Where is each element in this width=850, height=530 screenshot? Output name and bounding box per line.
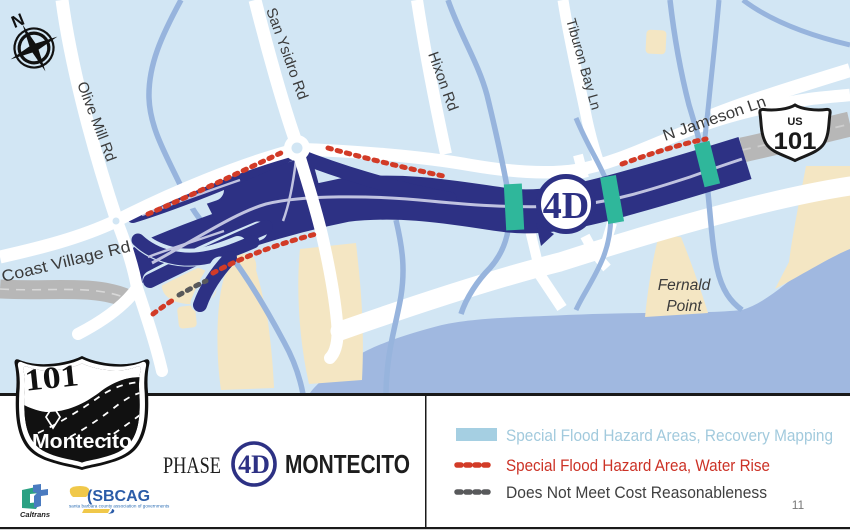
- svg-text:Point: Point: [666, 298, 702, 315]
- svg-text:Special Flood Hazard Area, Wat: Special Flood Hazard Area, Water Rise: [506, 457, 770, 475]
- svg-text:11: 11: [792, 498, 805, 512]
- svg-text:santa barbara county associati: santa barbara county association of gove…: [69, 504, 170, 509]
- svg-text:4D: 4D: [543, 185, 589, 227]
- svg-text:PHASE: PHASE: [163, 453, 221, 478]
- svg-text:101: 101: [774, 128, 817, 155]
- svg-text:Does Not Meet Cost Reasonablen: Does Not Meet Cost Reasonableness: [506, 484, 767, 502]
- svg-text:4D: 4D: [238, 450, 270, 479]
- svg-text:(SBCAG: (SBCAG: [87, 488, 150, 505]
- svg-text:Caltrans: Caltrans: [20, 510, 50, 519]
- svg-text:Special Flood Hazard Areas, Re: Special Flood Hazard Areas, Recovery Map…: [506, 427, 833, 445]
- svg-text:US: US: [787, 116, 802, 128]
- svg-text:101: 101: [23, 357, 80, 397]
- svg-text:Fernald: Fernald: [658, 277, 712, 294]
- svg-text:Montecito: Montecito: [32, 430, 132, 453]
- svg-text:MONTECITO: MONTECITO: [285, 449, 410, 479]
